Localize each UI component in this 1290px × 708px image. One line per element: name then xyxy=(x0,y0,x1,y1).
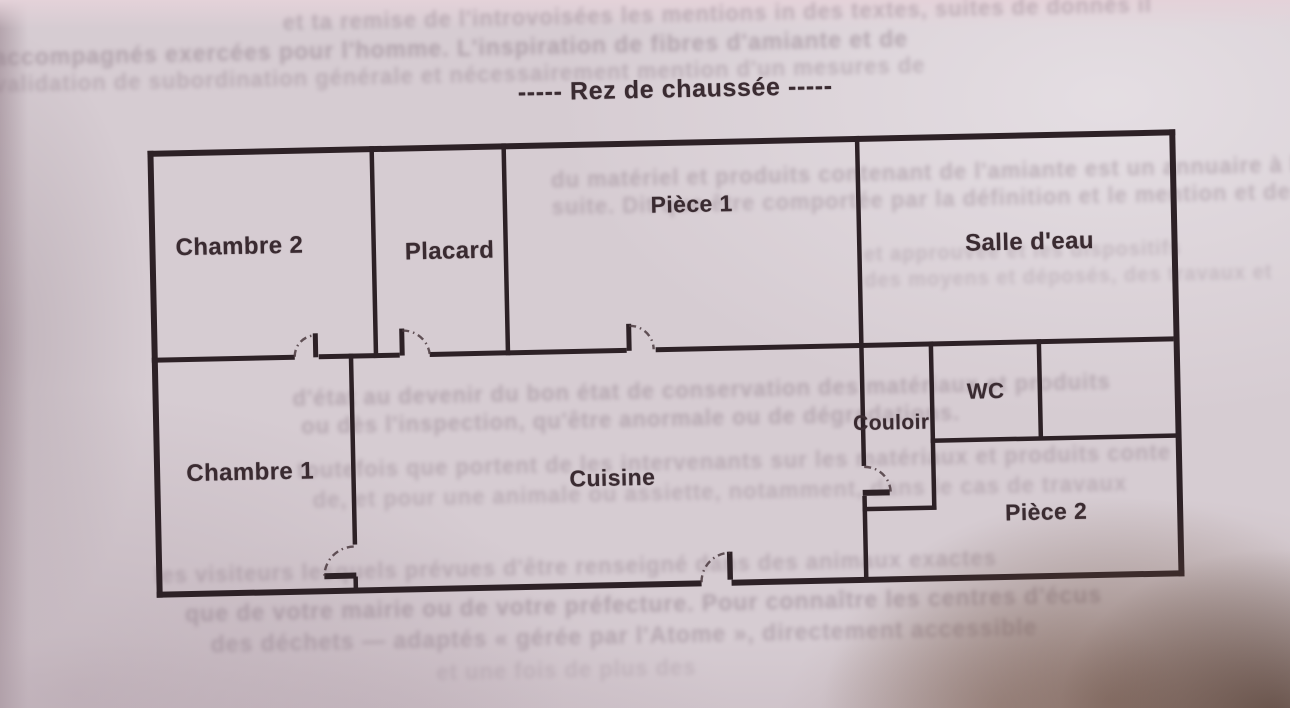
room-label-salle-deau: Salle d'eau xyxy=(965,227,1094,258)
room-label-wc: WC xyxy=(967,378,1005,405)
paper-rotation-wrapper: et ta remise de l'introvoisées les menti… xyxy=(0,0,1290,708)
room-label-placard: Placard xyxy=(405,237,495,267)
room-label-piece-2: Pièce 2 xyxy=(1005,498,1088,527)
room-label-cuisine: Cuisine xyxy=(569,464,655,493)
room-label-chambre-2: Chambre 2 xyxy=(175,232,303,263)
room-label-piece-1: Pièce 1 xyxy=(650,190,733,219)
plan-title: ----- Rez de chaussée ----- xyxy=(518,72,833,108)
document-photo: et ta remise de l'introvoisées les menti… xyxy=(0,0,1290,708)
room-labels-layer: ----- Rez de chaussée ----- Chambre 2Pla… xyxy=(0,0,1290,708)
room-label-chambre-1: Chambre 1 xyxy=(186,457,314,488)
room-label-couloir: Couloir xyxy=(853,411,930,437)
